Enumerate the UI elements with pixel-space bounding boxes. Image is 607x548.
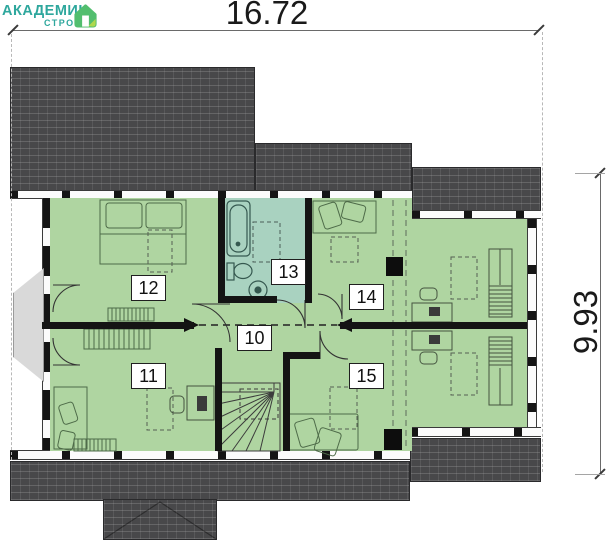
guide-line-right	[542, 32, 543, 472]
roof-bottom-right	[410, 438, 541, 482]
room-label-14: 14	[349, 284, 384, 310]
dim-extension	[575, 173, 605, 174]
wall-below-bathroom	[218, 296, 277, 303]
room-number: 14	[356, 287, 376, 308]
house-icon	[72, 2, 99, 29]
exterior-wall-right-wing	[527, 219, 537, 427]
wall-hall-15-left	[283, 352, 290, 451]
room-number: 13	[278, 262, 298, 283]
room-number: 11	[139, 366, 158, 387]
room-label-10: 10	[237, 325, 272, 351]
room-number: 12	[138, 278, 158, 299]
roof-bottom-dormer	[103, 499, 217, 540]
dimension-width-value: 16.72	[182, 0, 352, 32]
room-number: 15	[356, 366, 376, 387]
roof-top-left	[10, 67, 255, 192]
dimension-height-line	[600, 173, 601, 474]
dim-extension	[575, 474, 605, 475]
dimension-width-line	[13, 30, 539, 31]
room-label-12: 12	[131, 275, 166, 301]
balcony	[13, 268, 44, 382]
wall-11-12	[42, 322, 194, 329]
wall-12-13	[218, 198, 225, 303]
exterior-wall-top-wing	[412, 210, 541, 219]
room-label-15: 15	[349, 363, 384, 389]
chimney-top	[386, 257, 403, 276]
wall-14-15	[340, 322, 527, 329]
wall-13-14	[305, 198, 312, 303]
bathroom-area	[225, 198, 305, 303]
wall-stairs-left	[215, 348, 222, 451]
room-label-13: 13	[271, 259, 306, 285]
roof-top-middle	[255, 143, 412, 192]
roof-bottom-main	[10, 461, 410, 501]
guide-line-left	[11, 34, 12, 460]
chimney-bottom	[384, 429, 402, 450]
room-label-11: 11	[131, 363, 166, 389]
exterior-wall-bottom-wing	[410, 427, 541, 437]
room-number: 10	[244, 328, 264, 349]
floor-plan-page: АКАДЕМИК СТРОЙ 16.72 9.93	[0, 0, 607, 548]
exterior-wall-bottom	[10, 450, 410, 460]
roof-top-right	[412, 167, 541, 212]
